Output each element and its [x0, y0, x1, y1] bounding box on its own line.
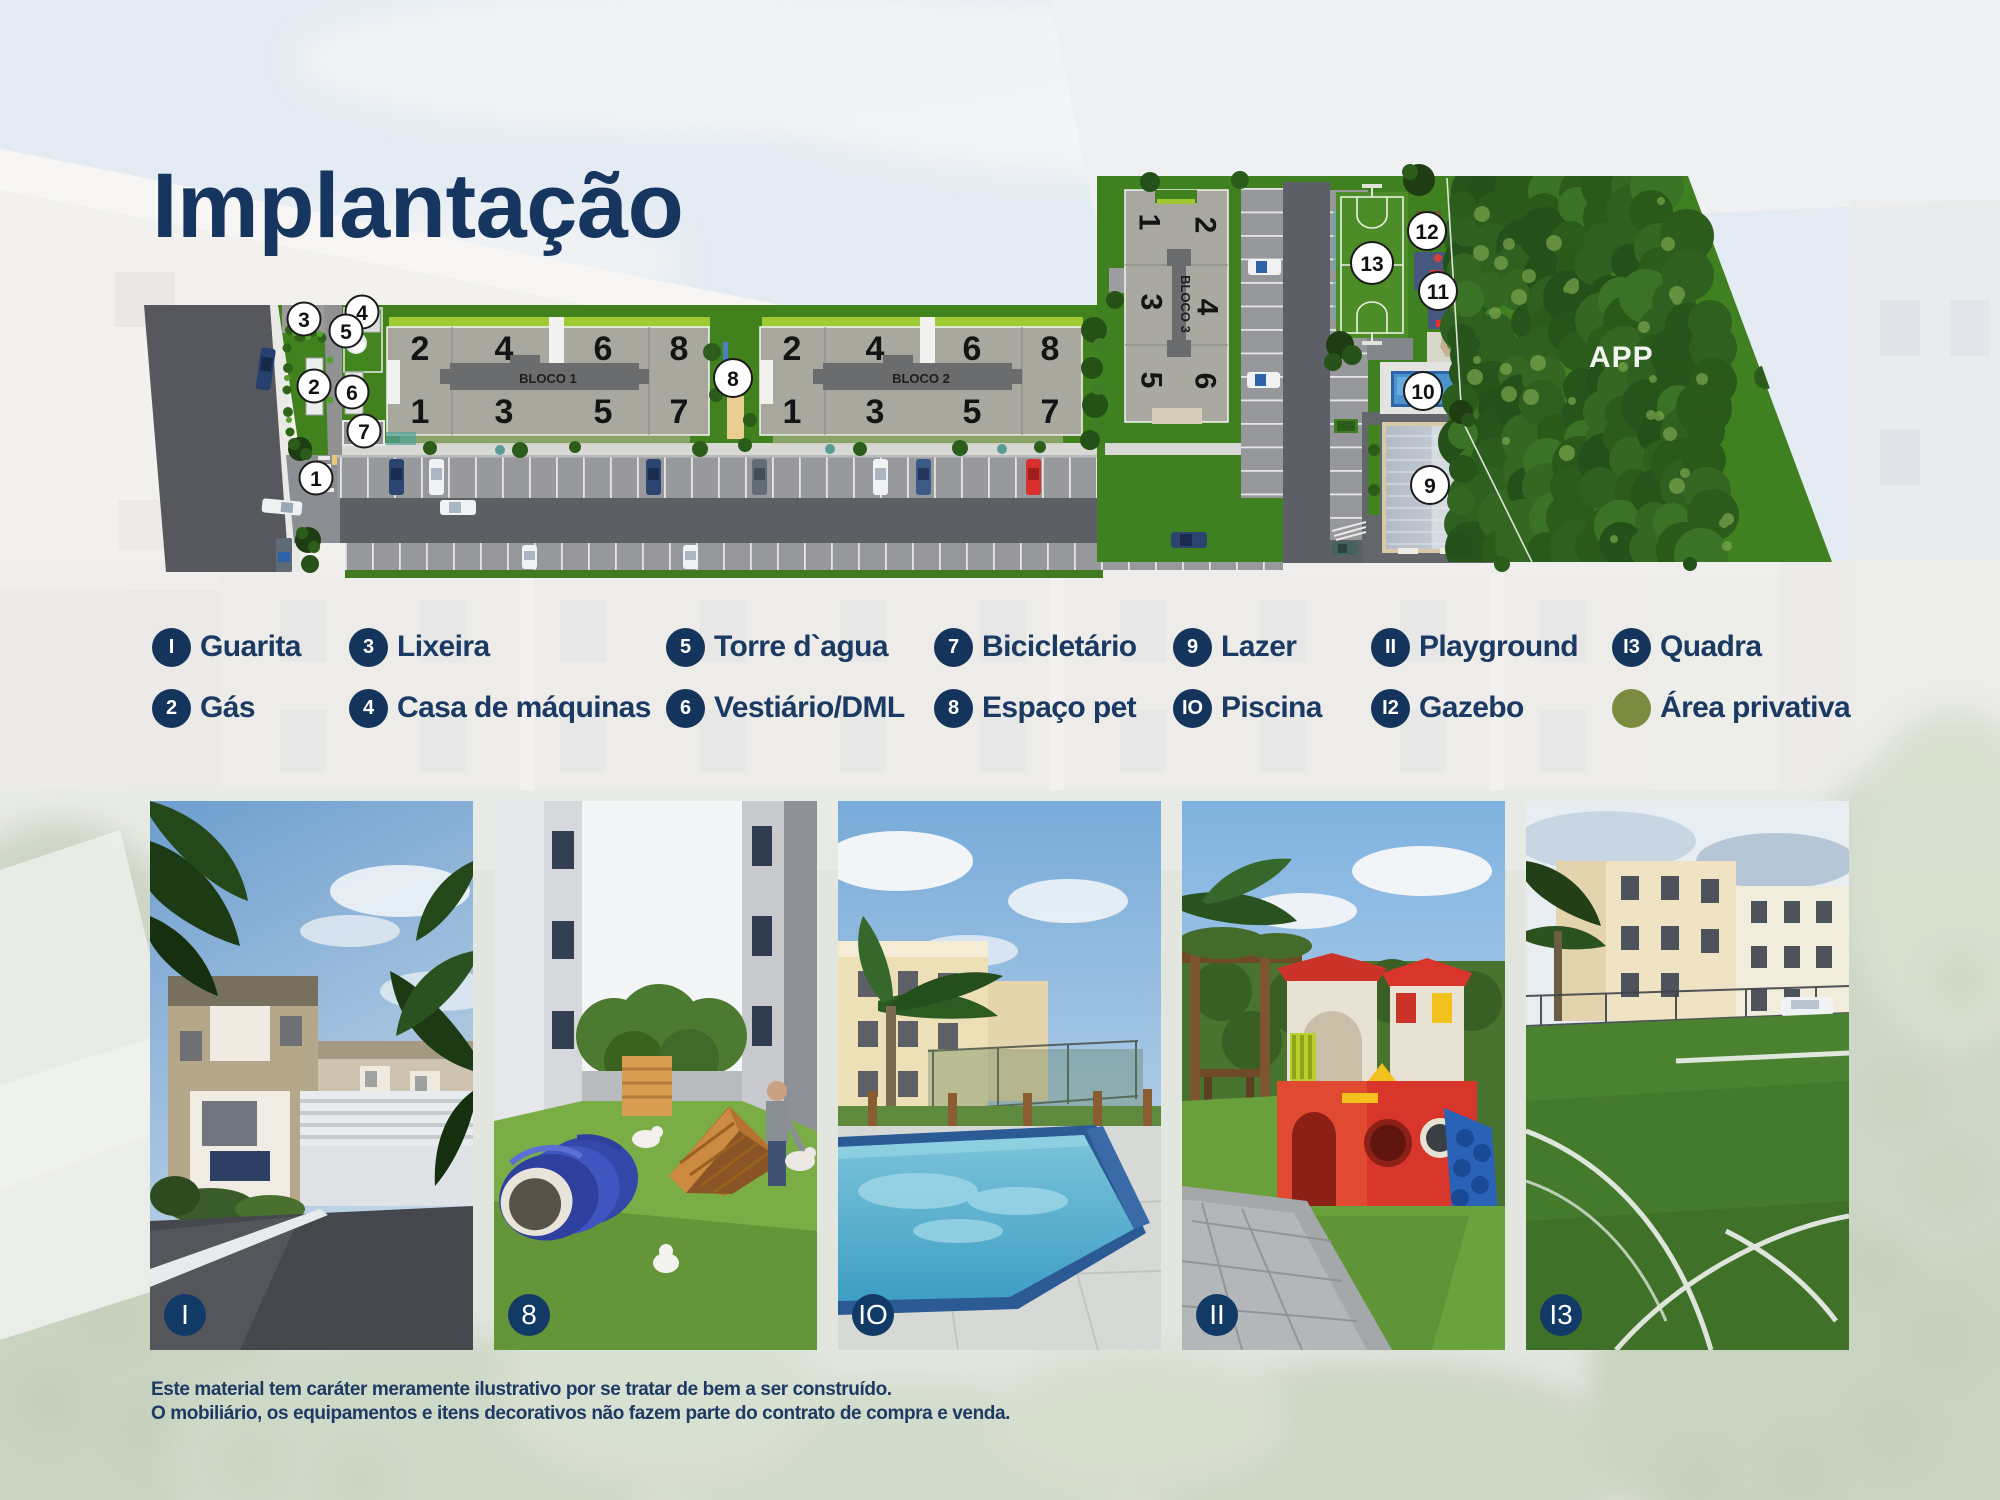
svg-text:I3: I3: [1549, 1299, 1572, 1330]
svg-text:1: 1: [411, 393, 430, 431]
svg-text:2: 2: [783, 330, 802, 368]
svg-text:7: 7: [1041, 393, 1060, 431]
svg-text:1: 1: [1133, 214, 1166, 231]
svg-text:6: 6: [594, 330, 613, 368]
svg-text:7: 7: [670, 393, 689, 431]
svg-text:4: 4: [495, 330, 514, 368]
svg-text:3: 3: [495, 393, 514, 431]
svg-text:5: 5: [963, 393, 982, 431]
svg-text:6: 6: [963, 330, 982, 368]
svg-text:9: 9: [1424, 475, 1436, 498]
svg-text:4: 4: [1191, 299, 1224, 316]
svg-text:6: 6: [1189, 373, 1222, 390]
svg-text:6: 6: [346, 382, 358, 405]
svg-text:12: 12: [1415, 221, 1438, 244]
svg-text:5: 5: [340, 321, 352, 344]
svg-text:8: 8: [670, 330, 689, 368]
svg-text:3: 3: [866, 393, 885, 431]
svg-text:4: 4: [866, 330, 885, 368]
svg-text:2: 2: [308, 376, 320, 399]
svg-text:8: 8: [521, 1299, 537, 1330]
svg-text:3: 3: [1135, 294, 1168, 311]
svg-text:5: 5: [594, 393, 613, 431]
svg-text:BLOCO 1: BLOCO 1: [519, 371, 577, 386]
svg-text:10: 10: [1411, 381, 1434, 404]
svg-text:5: 5: [1135, 372, 1168, 389]
svg-text:8: 8: [727, 368, 739, 391]
svg-text:1: 1: [783, 393, 802, 431]
svg-text:8: 8: [1041, 330, 1060, 368]
svg-text:2: 2: [1189, 217, 1222, 234]
svg-text:7: 7: [358, 421, 370, 444]
svg-text:13: 13: [1360, 253, 1383, 276]
svg-text:II: II: [1209, 1299, 1225, 1330]
svg-text:2: 2: [411, 330, 430, 368]
svg-text:APP: APP: [1589, 341, 1654, 374]
svg-text:IO: IO: [858, 1299, 888, 1330]
svg-text:BLOCO 2: BLOCO 2: [892, 371, 950, 386]
svg-text:I: I: [181, 1299, 189, 1330]
svg-text:1: 1: [310, 468, 322, 491]
svg-text:3: 3: [298, 309, 310, 332]
svg-text:11: 11: [1427, 281, 1450, 304]
